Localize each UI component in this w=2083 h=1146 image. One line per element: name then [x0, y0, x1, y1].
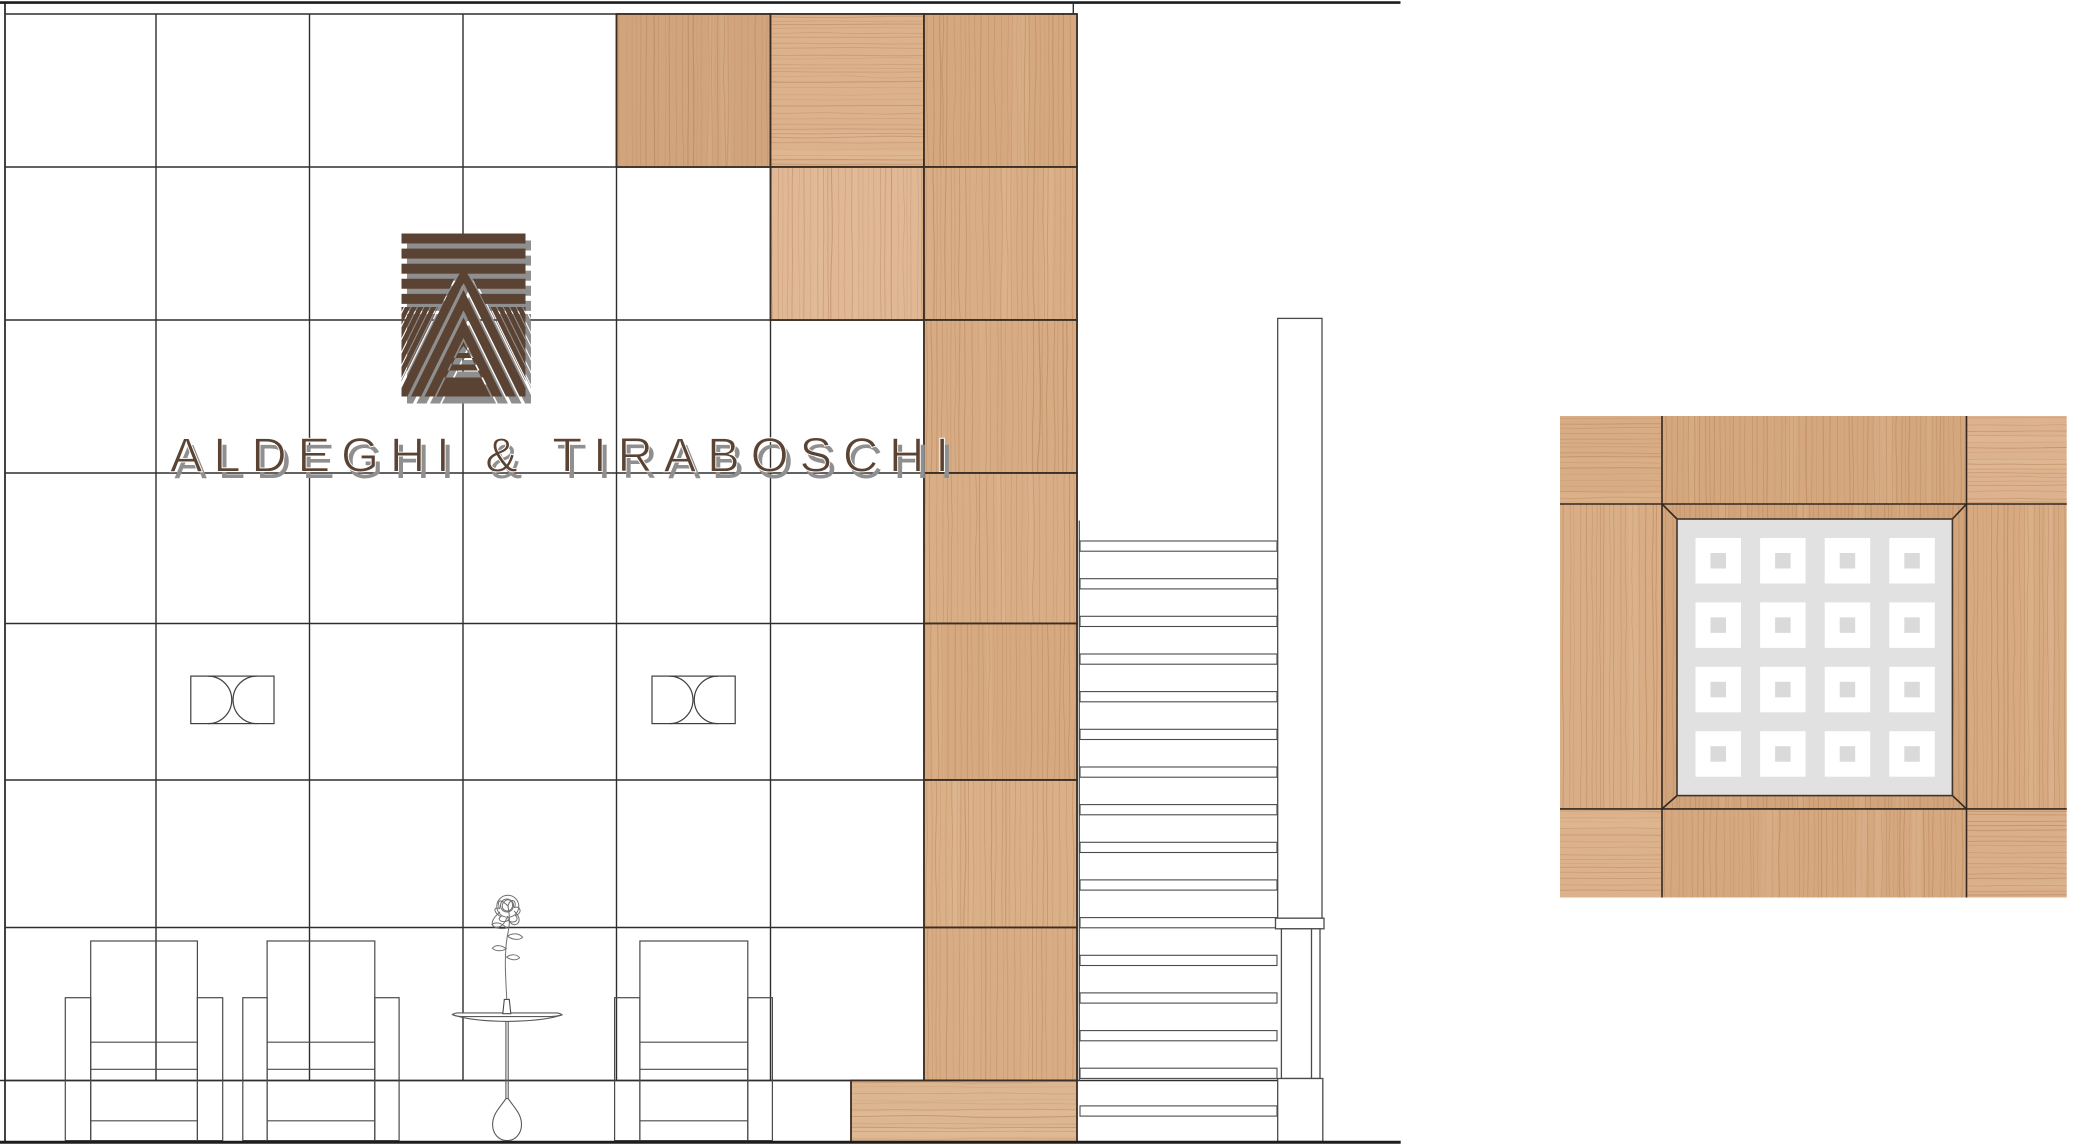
svg-text:ALDEGHI & TIRABOSCHI: ALDEGHI & TIRABOSCHI — [170, 428, 960, 482]
